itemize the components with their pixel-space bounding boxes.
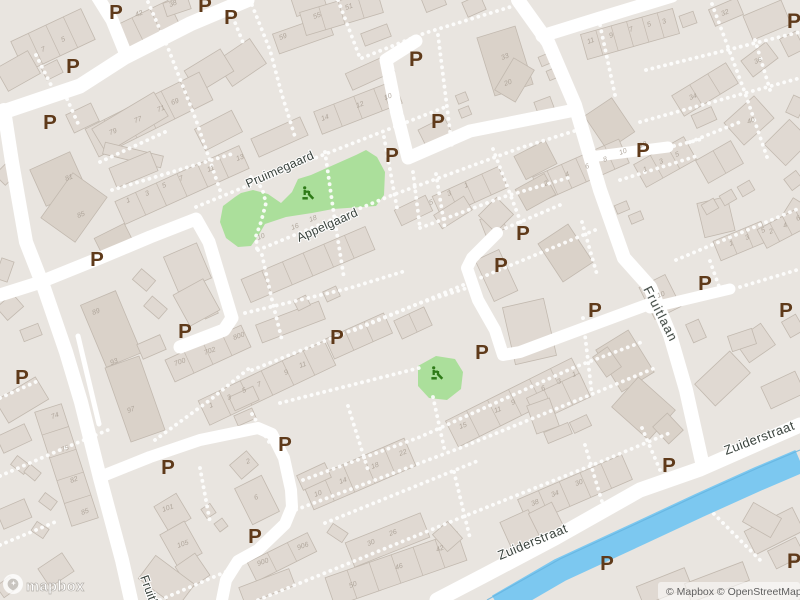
svg-text:P: P <box>698 272 712 295</box>
svg-text:P: P <box>636 139 650 162</box>
svg-text:P: P <box>330 326 344 349</box>
svg-text:P: P <box>90 248 104 271</box>
svg-text:P: P <box>224 6 238 29</box>
svg-text:© Mapbox © OpenStreetMap: © Mapbox © OpenStreetMap <box>666 586 800 598</box>
svg-text:mapbox: mapbox <box>26 579 85 595</box>
svg-text:P: P <box>779 299 793 322</box>
svg-text:P: P <box>198 0 212 17</box>
svg-text:P: P <box>600 552 614 575</box>
svg-text:P: P <box>475 341 489 364</box>
svg-text:P: P <box>516 222 530 245</box>
svg-text:P: P <box>431 110 445 133</box>
svg-text:P: P <box>15 366 29 389</box>
svg-text:P: P <box>161 456 175 479</box>
svg-text:P: P <box>43 111 57 134</box>
svg-text:P: P <box>109 1 123 24</box>
svg-text:P: P <box>588 299 602 322</box>
svg-text:P: P <box>278 433 292 456</box>
svg-text:P: P <box>248 525 262 548</box>
svg-text:P: P <box>385 144 399 167</box>
svg-text:P: P <box>409 48 423 71</box>
svg-text:P: P <box>662 454 676 477</box>
svg-text:P: P <box>66 55 80 78</box>
svg-text:P: P <box>787 10 800 33</box>
svg-text:P: P <box>178 320 192 343</box>
svg-text:P: P <box>787 550 800 573</box>
svg-text:P: P <box>494 254 508 277</box>
